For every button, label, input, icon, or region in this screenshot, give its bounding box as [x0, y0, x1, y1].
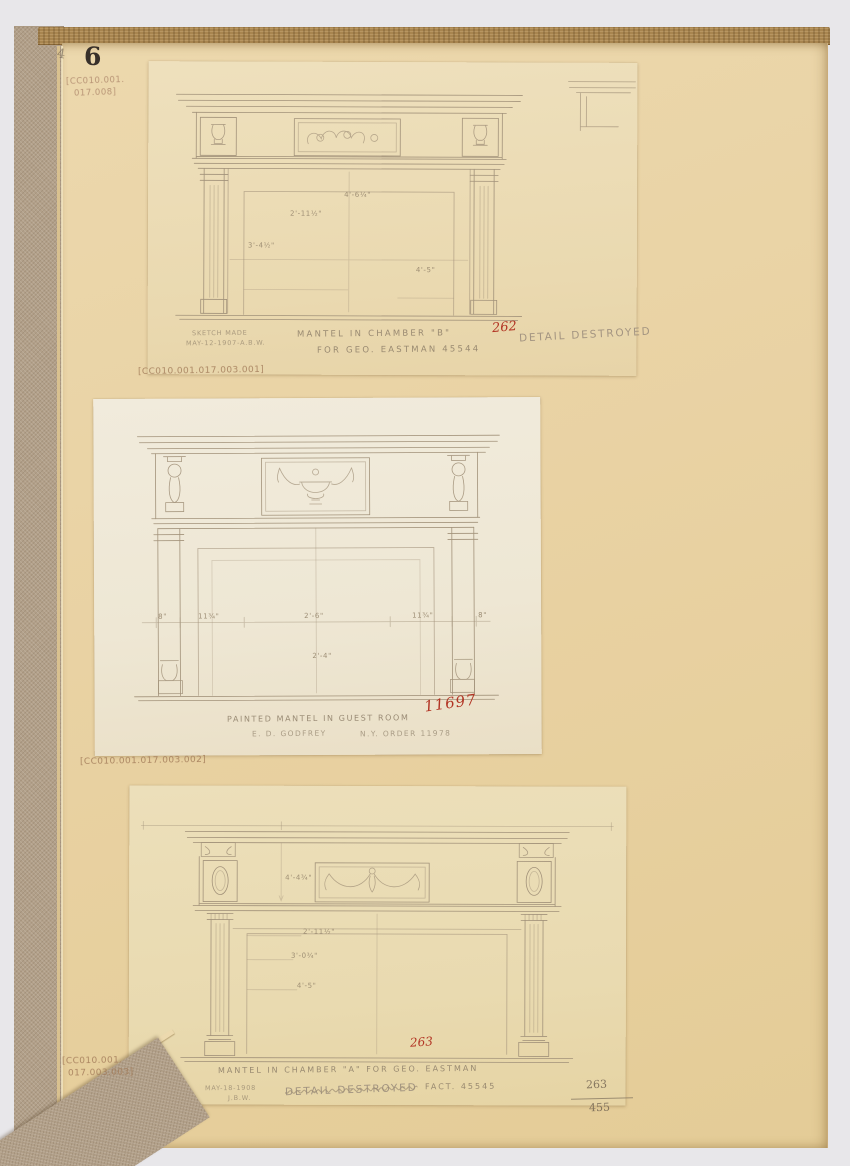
- drawing-author: E. D. GODFREY: [252, 729, 327, 739]
- red-ink-number: 263: [410, 1034, 434, 1050]
- scanned-album-page: 4'-6¼" 2'-11½" 3'-4½" 4'-5": [0, 0, 850, 1166]
- sketch-note: SKETCH MADE: [192, 329, 248, 337]
- draped-urn-ornament: [277, 468, 353, 504]
- drawing-date: MAY-18-1908: [205, 1084, 256, 1092]
- dimension-label: 3'-0¾": [291, 952, 318, 960]
- pencil-fraction-numerator: 263: [586, 1078, 607, 1092]
- dimension-label: 8": [158, 613, 167, 621]
- scroll-ornament: [307, 131, 377, 144]
- pencil-fraction-denominator: 455: [589, 1101, 610, 1115]
- dimension-label: 4'-5": [297, 982, 317, 990]
- drawing-sheet-chamber-a: 4'-4¾" 2'-11½" 3'-0¾" 4'-5": [129, 785, 627, 1105]
- page-stack-edge: [61, 46, 63, 1144]
- baluster-colonnettes: [163, 455, 469, 511]
- mantel-elevation-drawing-a: 4'-4¾" 2'-11½" 3'-0¾" 4'-5": [129, 785, 627, 1105]
- dimension-label: 2'-4": [312, 652, 332, 660]
- dimension-label: 11¾": [412, 611, 433, 619]
- catalog-number-sheet3-line1: [CC010.001.: [62, 1055, 123, 1066]
- corner-catalog-note-line1: [CC010.001.: [66, 75, 125, 87]
- dimension-label: 3'-4½": [248, 241, 275, 249]
- drawing-subtitle-b: FOR GEO. EASTMAN 45544: [317, 344, 480, 355]
- swag-ornament: [325, 868, 420, 892]
- dimension-label: 4'-4¾": [285, 874, 312, 882]
- dimension-label: 8": [478, 611, 487, 619]
- corner-catalog-note-line2: 017.008]: [74, 87, 117, 98]
- drawing-subtitle-a: FACT. 45545: [425, 1082, 496, 1092]
- page-number: 6: [84, 42, 101, 71]
- dimension-label: 4'-5": [416, 266, 436, 274]
- urn-finials: [211, 124, 487, 145]
- catalog-number-sheet3-line2: 017.003.003]: [68, 1067, 134, 1078]
- dimension-label: 4'-6¼": [344, 191, 371, 199]
- sketch-date-note: MAY-12-1907-A.B.W.: [186, 339, 266, 348]
- dimension-label: 2'-11½": [303, 928, 335, 936]
- dimension-label: 11¾": [198, 612, 219, 620]
- page-stack-edge: [57, 46, 60, 1144]
- dimension-label: 2'-6": [304, 612, 324, 620]
- capital-brackets: [201, 843, 553, 858]
- dimension-label: 2'-11½": [290, 210, 322, 218]
- drawing-order-number: N.Y. ORDER 11978: [360, 729, 451, 739]
- corner-sketch-fragment: [568, 82, 635, 131]
- red-ink-number: 262: [491, 319, 517, 336]
- drawing-title-b: MANTEL IN CHAMBER "B": [297, 328, 451, 339]
- drawing-initials: J.B.W.: [228, 1094, 251, 1102]
- drawing-title-guest: PAINTED MANTEL IN GUEST ROOM: [227, 713, 410, 724]
